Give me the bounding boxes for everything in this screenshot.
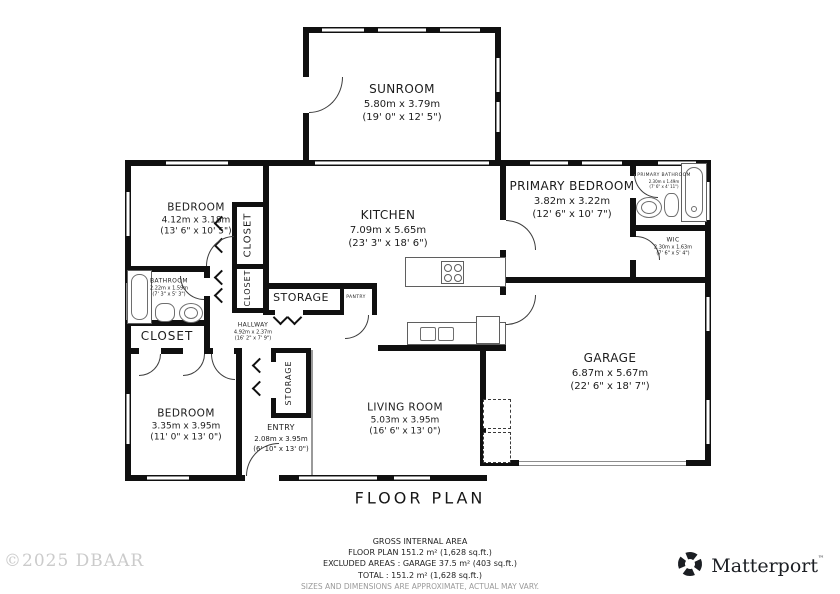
room-label-bedroom1: BEDROOM 4.12m x 3.18m (13' 6" x 10' 5") [160,201,231,238]
bifold-door-chevron [252,358,268,374]
door-arc-bedroom1 [206,236,234,266]
room-name: STORAGE [284,360,294,405]
room-name: PRIMARY BEDROOM [509,179,634,195]
room-label-entry: ENTRY 2.08m x 3.95m (6' 10" x 13' 0") [253,422,309,454]
room-label-bathroom: BATHROOM 2.22m x 1.59m (7' 3" x 5' 3") [150,278,188,299]
area-line: GROSS INTERNAL AREA [0,536,840,547]
entry-living-partition [311,350,313,475]
room-dim-imperial: (7' 6" x 4' 11") [637,184,691,189]
window [706,297,710,331]
wall-garage-north [500,277,711,283]
window [126,192,130,236]
door-arc-sunroom [309,77,343,113]
room-label-pantry: PANTRY [346,295,366,301]
window [496,58,500,92]
stove-burner [454,274,462,282]
floor-plan-canvas: SUNROOM 5.80m x 3.79m (19' 0" x 12' 5") … [0,0,840,594]
room-label-garage: GARAGE 6.87m x 5.67m (22' 6" x 18' 7") [570,351,649,393]
window [394,476,430,480]
wall-kitchen-south [378,345,506,351]
wall-garage-bottom-b [686,460,711,466]
room-dim-imperial: (16' 6" x 13' 0") [367,427,443,439]
door-arc-closet-right [183,354,205,376]
door-arc-bedroom2 [211,354,235,380]
window [706,400,710,444]
window [299,476,377,480]
room-dim-metric: 5.03m x 3.95m [367,415,443,427]
room-label-hallway: HALLWAY 4.92m x 2.37m (16' 2" x 7' 9") [234,322,272,343]
appliance-dashed-box [483,432,511,463]
room-label-primary-bathroom: PRIMARY BATHROOM 2.30m x 1.49m (7' 6" x … [637,173,691,189]
room-dim-imperial: (12' 6" x 10' 7") [509,208,634,221]
window [582,161,622,165]
room-dim-imperial: (22' 6" x 18' 7") [570,380,649,393]
wall-wic-north [630,225,711,231]
wall-storage-bottom-a [263,310,275,315]
bathtub-drain [691,206,697,212]
trademark-mark: ™ [818,555,824,562]
room-label-closet-upper: CLOSET [242,213,255,258]
room-label-sunroom: SUNROOM 5.80m x 3.79m (19' 0" x 12' 5") [362,82,441,124]
bifold-door-chevron [214,270,230,286]
door-arc-primary-bedroom [506,220,536,250]
room-name: STORAGE [273,291,329,305]
disclaimer: SIZES AND DIMENSIONS ARE APPROXIMATE, AC… [0,582,840,593]
stove-burner [444,274,452,282]
room-dim-imperial: (7' 3" x 5' 3") [150,292,188,299]
room-dim-imperial: (13' 6" x 10' 5") [160,227,231,239]
toilet-bowl [641,201,657,214]
wall-bedroom2-east [236,348,242,481]
bifold-door-chevron [287,310,303,326]
bathtub-inner [131,274,148,320]
room-dim-metric: 2.08m x 3.95m [253,434,309,444]
garage-door [519,461,686,466]
door-arc-closet-left [139,354,161,376]
room-dim-metric: 7.09m x 5.65m [348,224,427,237]
kitchen-sink [438,327,454,341]
wall-sunroom-right [495,27,501,166]
window [496,102,500,132]
room-name: BEDROOM [160,201,231,215]
door-arc-garage [506,295,536,325]
room-name: PANTRY [346,295,366,301]
room-dim-metric: 3.82m x 3.22m [509,195,634,208]
room-name: BEDROOM [150,407,221,421]
room-label-living-room: LIVING ROOM 5.03m x 3.95m (16' 6" x 13' … [367,401,443,438]
room-name: HALLWAY [234,322,272,330]
window [440,28,480,32]
room-label-primary-bedroom: PRIMARY BEDROOM 3.82m x 3.22m (12' 6" x … [509,179,634,221]
wall-storage-top [263,283,377,289]
room-name: ENTRY [253,422,309,434]
wall-storage-bottom-b [303,310,342,315]
wall-entry-storage-bottom [271,413,311,418]
room-name: PRIMARY BATHROOM [637,173,691,179]
room-dim-imperial: (6' 10" x 13' 0") [253,444,309,454]
wall-closet-hall-bottom-a [125,348,139,354]
bathroom-sink [664,193,679,217]
wall-kitchen-east-a [500,160,506,220]
room-name: WIC [654,237,692,245]
wall-entry-storage-top [271,348,311,353]
appliance-dashed-box [483,399,511,429]
room-name: LIVING ROOM [367,401,443,415]
watermark: ©2025 DBAAR [4,551,144,571]
wall-sunroom-left-b [303,113,309,166]
window-slider-sunroom [315,161,489,165]
room-name: CLOSET [243,269,253,306]
room-dim-imperial: (7' 6" x 5' 4") [654,251,692,258]
bifold-door-chevron [252,381,268,397]
room-name: BATHROOM [150,278,188,286]
window [378,28,426,32]
wall-closet-lower-bottom [232,308,265,313]
brand-logo: Matterport™ [677,551,824,581]
room-label-bedroom2: BEDROOM 3.35m x 3.95m (11' 0" x 13' 0") [150,407,221,444]
plan-title: FLOOR PLAN [355,489,486,508]
fridge [476,316,500,344]
room-name: KITCHEN [348,208,427,224]
window [126,394,130,444]
wall-closet-lower-left [232,264,237,313]
room-name: CLOSET [141,329,194,345]
window [147,476,189,480]
window [530,161,568,165]
bifold-door-chevron [214,288,230,304]
room-label-kitchen: KITCHEN 7.09m x 5.65m (23' 3" x 18' 6") [348,208,427,250]
room-label-closet-lower: CLOSET [243,269,253,306]
room-label-storage: STORAGE [273,291,329,305]
window [166,161,228,165]
matterport-pinwheel-icon [677,551,703,581]
room-dim-imperial: (16' 2" x 7' 9") [234,336,272,343]
room-dim-metric: 5.80m x 3.79m [362,98,441,111]
brand-name: Matterport™ [711,555,824,577]
room-name: SUNROOM [362,82,441,98]
room-dim-metric: 3.35m x 3.95m [150,421,221,433]
stove-burner [454,264,462,272]
room-name: CLOSET [242,213,255,258]
wall-pantry-right [372,283,377,315]
toilet-bowl [184,307,198,319]
stove-burner [444,264,452,272]
wall-wic-west-b [630,260,636,283]
kitchen-sink [420,327,436,341]
wall-closet-hall-bottom-b [161,348,183,354]
bathroom-sink [155,303,175,322]
room-dim-metric: 6.87m x 5.67m [570,367,649,380]
window [322,28,364,32]
room-dim-imperial: (23' 3" x 18' 6") [348,237,427,250]
room-dim-imperial: (19' 0" x 12' 5") [362,111,441,124]
room-dim-imperial: (11' 0" x 13' 0") [150,433,221,445]
room-label-wic: WIC 2.30m x 1.63m (7' 6" x 5' 4") [654,237,692,258]
wall-bathroom-east-a [204,266,210,278]
room-dim-metric: 4.12m x 3.18m [160,215,231,227]
wall-sunroom-left-a [303,27,309,77]
door-arc-pantry [345,315,369,339]
wall-entry-storage-left-a [271,348,276,362]
room-label-closet-hall: CLOSET [141,329,194,345]
room-name: GARAGE [570,351,649,367]
brand-name-text: Matterport [711,555,818,577]
room-label-storage-entry: STORAGE [284,360,294,405]
